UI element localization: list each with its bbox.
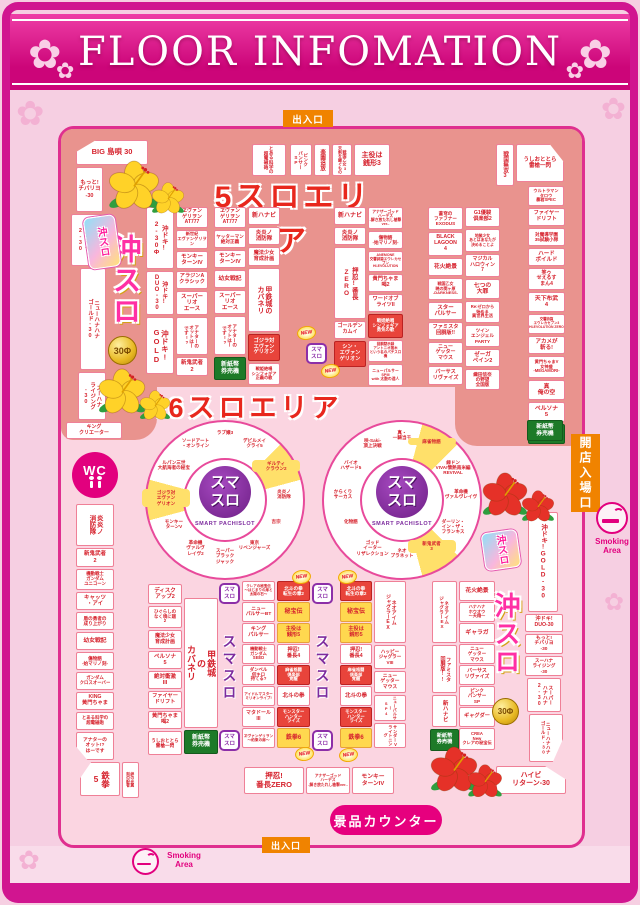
fortysix-left-col-machine: とある科学の 超電磁砲 — [76, 712, 114, 730]
fortysix-inner-col-machine: ディスク アップ2 — [148, 584, 182, 604]
floor-map-page: ✿ ✿ FLOOR INFOMATION ✿ ✿ ✿ ✿ ✿ ✿ 出入口 5スロ… — [0, 0, 640, 905]
fortysix-left-col-machine: 幼女戦記 — [76, 632, 114, 650]
five-slot-col-f-machine: 蒼穹の ファフナー EXODUS — [428, 207, 463, 230]
smaslo-logo: スマ スロ — [199, 466, 251, 518]
island2-left-machine: 鉄拳6 — [340, 728, 372, 748]
circle-machine-label: デビルメイ クライ5 — [231, 438, 279, 449]
bottom-row-machine: アナザーゴッド ハーデス -解き放たれし槍撃ver.- — [306, 767, 350, 794]
top-row-machine: 楽園追放 — [314, 144, 330, 176]
wc-label: WC — [83, 463, 107, 478]
top-row-machine: 戦国乙女3 天剣を継ぐもの — [332, 144, 352, 176]
five-slot-col-g-machine: ツイン エンジェル PARTY — [465, 325, 500, 347]
bottom-strip — [10, 846, 630, 886]
top-row-machine: 戦国無双3 — [496, 144, 514, 186]
island3-left-machine: ファミスタ 回胴版!! — [432, 645, 457, 693]
five-slot-col-c-machine: 新ハナビ — [248, 207, 280, 225]
coin-30-badge: 30Φ — [492, 698, 519, 725]
coin-30-badge: 30Φ — [108, 336, 137, 365]
five-slot-col-e-machine: 回胴黙示録 アントニオ猪木 という名のパチスロ機 — [368, 340, 403, 362]
island2-right-machine: サンダーV ライトニング — [374, 723, 406, 748]
five-slot-right-col-machine: ハード ボイルド — [528, 248, 565, 266]
circle-machine-label: バイオ ハザード5 — [327, 460, 375, 471]
five-slot-right-col-machine: 真 俺の空 — [528, 380, 565, 400]
fortysix-inner-col-machine: うしおととら 雷槍一閃 — [148, 731, 182, 755]
island1-left-machine: マタドール III — [242, 707, 275, 727]
hibiscus-flower-icon — [138, 390, 172, 420]
okislo-right-col-machine: 沖ドキ!GOLD-30 — [528, 512, 558, 612]
five-slot-right-col-machine: 交響詩篇 エウレカセブン3 HI-EVOLUTION ZERO — [528, 314, 565, 334]
sakura-icon: ✿ — [601, 92, 626, 127]
five-slot-col-a-machine: 新鬼武者 2 — [176, 357, 208, 376]
island1-left-machine: ヱヴァンゲリヲン 〜約束の扉〜 — [242, 728, 275, 748]
hibiscus-flower-icon — [520, 490, 556, 522]
page-title: FLOOR INFOMATION — [78, 29, 562, 75]
island3-right-machine: ギャグダー — [459, 707, 495, 727]
five-slot-right-col-machine: ファイヤー ドリフト — [528, 208, 565, 226]
island1-left-machine: キング パルサー — [242, 623, 275, 643]
island1-left-machine: ダンベル 何キロ 持てる? — [242, 665, 275, 685]
circle-machine-label: 化物語 — [327, 519, 375, 524]
five-slot-col-d-machine: シン・ エヴァン ゲリオン — [334, 341, 366, 367]
five-slot-col-b-machine: ヱヴァン ゲリヲン AT777 — [214, 207, 246, 228]
five-slot-col-c-machine: 魔法少女 育成計画 — [248, 247, 280, 266]
smoking-icon — [132, 848, 159, 875]
bottom-row-machine: モンキー ターンIV — [352, 767, 394, 794]
island1-left-machine: ニュー パルサーBT — [242, 602, 275, 622]
island1-left-machine: クレアの秘宝伝 〜はじまりの扉と 太陽の石〜 — [242, 581, 275, 601]
island1-right-machine: 押忍! 番長4 — [277, 644, 310, 664]
hibiscus-flower-icon — [150, 182, 186, 214]
prize-counter: 景品カウンター — [330, 805, 442, 835]
sakura-icon: ✿ — [604, 588, 624, 617]
okislo-right-col-machine: もっと! チバリヨ -30 — [525, 634, 563, 654]
island2-left-machine: モンスター ハンター ライズ — [340, 707, 372, 727]
bottom-row-machine: 押忍! 番長ZERO — [244, 767, 304, 794]
fortysix-left-col-machine: 絆の光翼 刻の配者 — [122, 762, 139, 798]
sakura-icon: ✿ — [566, 58, 584, 84]
sakura-icon: ✿ — [16, 94, 45, 134]
island3-left-machine: 新ハナビ — [432, 695, 457, 727]
five-slot-col-f-machine: ファミスタ 回胴版!! — [428, 322, 463, 340]
five-slot-col-f-machine: ニュー ゲッター マウス — [428, 342, 463, 364]
fortysix-inner-col-machine: 黄門ちゃま 喝2 — [148, 711, 182, 729]
circle-machine-label: 吉宗 — [252, 519, 300, 524]
okislo-left-okidoki-machine: 沖ドキ! GOLD — [146, 317, 174, 374]
circle-machine-label: ソードアート ・オンライン — [172, 438, 220, 449]
circle-machine-label: ゴジラ対 エヴァン ゲリオン — [142, 489, 190, 507]
island1-right-machine: 北斗の拳 — [277, 686, 310, 706]
fortysix-left-col-machine: 機動戦士 ガンダム ユニコーン — [76, 569, 114, 590]
circle-machine-label: 緑ドン VIVA!情熱南米編 REVIVAL — [429, 460, 477, 476]
five-slot-col-g-machine: ゼーガ ペイン2 — [465, 349, 500, 367]
island2-right-machine: ニューパルサー SP4 — [374, 695, 406, 721]
fortysix-slot-area-title: 46スロエリア — [148, 386, 344, 425]
entrance-badge-bottom: 出入口 — [262, 837, 310, 853]
smoking-area-label-right: Smoking Area — [581, 537, 640, 555]
five-slot-col-c-machine: 甲鉄城の カバネリ — [248, 268, 280, 332]
circle-machine-label: 麻雀物語 — [408, 438, 456, 445]
five-slot-col-g-machine: Re:ゼロから 始める 異世界生活 — [465, 301, 500, 323]
circle-machine-label: モンキー ターンV — [150, 519, 198, 530]
entrance-badge-top: 出入口 — [283, 110, 333, 127]
five-slot-col-e-machine: アナザーゴッド ハーデス -解き放たれし槍撃ver.- — [368, 207, 403, 229]
smaslo-mini-badge: スマ スロ — [306, 343, 327, 364]
five-slot-right-col-machine: 笑ゥ せえるす まん4 — [528, 268, 565, 290]
five-slot-col-e-machine: 黄門ちゃま 喝2 — [368, 274, 403, 292]
smaslo-mini-badge: スマ スロ — [312, 730, 333, 751]
circle-machine-label: ギルティ クラウン2 — [252, 460, 300, 473]
five-slot-right-col-machine: ペルソナ 5 — [528, 402, 565, 422]
fortysix-inner-col-machine: 魔法少女 育成計画 — [148, 630, 182, 649]
sakura-icon: ✿ — [56, 58, 74, 84]
five-slot-col-a-machine: 新世紀 エヴァンゲリヲン — [176, 230, 208, 249]
five-slot-right-col-machine: 対魔導学園 35試験小隊 — [528, 228, 565, 246]
five-slot-col-c-machine: ゴジラ対 エヴァン ゲリオン — [248, 334, 280, 361]
island1-right-machine: 主役は 銭形5 — [277, 623, 310, 643]
five-slot-col-g-machine: 地獄少女 あとはあなたが 決めることよ — [465, 229, 500, 252]
island1-right-machine: 秘宝伝 — [277, 602, 310, 622]
five-slot-col-f-machine: BLACK LAGOON 4 — [428, 232, 463, 256]
island1-right-machine: 鉄拳6 — [277, 728, 310, 748]
island1-right-machine: 麻雀格闘 倶楽部 覚醒 — [277, 665, 310, 685]
fortysix-left-col-machine: 炎炎ノ 消防隊 — [76, 504, 114, 546]
circle-machine-label: 革命機 ヴァルヴレイヴ — [437, 489, 485, 500]
island2-right-machine: ニュー ゲッター マウス — [374, 671, 406, 693]
five-slot-col-e-machine: ANEMONE 交響詩篇エウレカセブン HI-EVOLUTION — [368, 251, 403, 272]
smaslo-mini-badge: スマ スロ — [219, 583, 240, 604]
fortysix-inner-col-machine: ペルソナ 5 — [148, 651, 182, 669]
circle-machine-label: ダーリン・ イン・ザ・ フランキス — [429, 519, 477, 535]
island1-right-machine: 北斗の拳 転生の章2 — [277, 581, 310, 601]
five-slot-col-b-machine: スーパー リオ エース — [214, 290, 246, 314]
fortysix-left-col-machine: 傷物語 -始マリノ刻- — [76, 652, 114, 670]
opening-entrance-badge: 開店入場口 — [571, 434, 600, 512]
five-slot-col-b-machine: アナターの オットはー です!? — [214, 316, 246, 355]
five-slot-col-f-machine: スター パルサー — [428, 302, 463, 320]
five-slot-col-a-machine: アラジンA クラシック — [176, 271, 208, 289]
fortysix-left-col-machine: KING 黄門ちゃま — [76, 692, 114, 710]
five-slot-right-col-machine: 天下布武 4 — [528, 292, 565, 312]
five-slot-col-g-machine: 七つの 大罪 — [465, 279, 500, 299]
smoking-area-label-bottom: Smoking Area — [158, 851, 210, 869]
circle-machine-label: 革命機 ヴァルヴ レイヴ2 — [172, 540, 220, 556]
fortysix-left-col-machine: キャッツ ・アイ — [76, 592, 114, 610]
circle-machine-label: 咲-Saki- 頂上決戦 — [349, 438, 397, 449]
five-slot-col-d-machine: 押忍!番長 ZERO — [334, 247, 366, 319]
island1-left-machine: アイドルマスター ミリオンライブ! — [242, 686, 275, 706]
five-slot-col-a-machine: アナターの オットはー です!? — [176, 317, 208, 355]
okislo-right-col-machine: 新紙幣 券売機 — [527, 420, 563, 441]
top-row-machine: とある科学の 超電磁砲 — [252, 144, 286, 176]
fortysix-inner-col-machine: 絶対衝激 III — [148, 671, 182, 689]
five-slot-col-f-machine: 花火絶景 — [428, 258, 463, 276]
five-slot-col-b-machine: ヤッターマン 絶対正義 — [214, 230, 246, 248]
smaslo-logo: スマ スロ — [376, 466, 428, 518]
five-slot-col-g-machine: G1優駿 倶楽部2 — [465, 207, 500, 227]
top-row-machine: 主役は 銭形3 — [354, 144, 390, 176]
header-banner: ✿ ✿ FLOOR INFOMATION ✿ ✿ — [10, 14, 630, 90]
five-slot-col-e-machine: ニューパルサー SPIII with 太鼓の達人 — [368, 364, 403, 386]
island1-left-machine: 機動戦士 ガンダム SEED — [242, 644, 275, 664]
smaslo-mini-badge: スマ スロ — [219, 730, 240, 751]
okislo-left-okidoki-machine: 沖ドキ! 2-30Φ — [146, 207, 174, 269]
island2-left-machine: 麻雀格闘 倶楽部 覚醒 — [340, 665, 372, 685]
smaslo-strip-label: スマスロ — [219, 606, 240, 730]
restroom-icon — [90, 481, 101, 488]
five-slot-col-e-machine: 戦姫絶唱 シンフォギア 勇気の歌 — [368, 314, 403, 338]
five-slot-col-d-machine: 炎炎ノ 消防隊 — [334, 227, 366, 245]
island3-left-machine: ネオアイム ジャグラーEX — [432, 581, 457, 643]
fortysix-inner-col-machine: ひぐらしの なく頃に廻 2 — [148, 606, 182, 628]
island2-right-machine: ネオアイム ジャグラーEX — [374, 581, 406, 643]
smaslo-mini-badge: スマ スロ — [312, 583, 333, 604]
five-slot-col-b-machine: モンキー ターンIV — [214, 250, 246, 268]
okislo-left-okidoki-machine: 沖ドキ! DUO-30 — [146, 271, 174, 315]
five-slot-col-a-machine: モンキー ターンIV — [176, 251, 208, 269]
hibiscus-flower-icon — [466, 764, 504, 797]
island2-left-machine: 主役は 銭形5 — [340, 623, 372, 643]
five-slot-col-g-machine: 織田信奈 の野望 全国版 — [465, 369, 500, 390]
okislo-right-col-machine: スーハナ ライジング -30 — [525, 656, 563, 676]
okislo-right-col-machine: スーパー ハナハナ 2-30 — [527, 678, 561, 712]
okislo-right-col-machine: 沖ドキ! DUO-30 — [525, 614, 563, 632]
top-row-machine: ウルトラマン タロウ 暴君SPEC — [528, 186, 564, 206]
circle-machine-label: からくり サーカス — [319, 489, 367, 500]
top-row-machine: ピンク パンサー SP — [290, 144, 312, 176]
island1-right-machine: モンスター ハンター ライズ — [277, 707, 310, 727]
island2-left-machine: 押忍! 番長4 — [340, 644, 372, 664]
oki-slot-title-right: 沖スロ — [488, 592, 525, 702]
five-slot-col-b-machine: 幼女戦記 — [214, 270, 246, 288]
five-slot-col-b-machine: 新紙幣 券売機 — [214, 357, 246, 380]
island2-left-machine: 秘宝伝 — [340, 602, 372, 622]
five-slot-col-a-machine: スーパー リオ エース — [176, 291, 208, 315]
circle-machine-label: ルパン三世 大航海者の秘宝 — [150, 460, 198, 471]
restroom-badge: WC — [72, 452, 118, 498]
five-slot-col-d-machine: 新ハナビ — [334, 207, 366, 225]
circle-machine-label: ラブ嬢3 — [201, 430, 249, 435]
five-slot-right-col-machine: アカメが 斬る! — [528, 336, 565, 354]
fortysix-left-col-machine: 新鬼武者 2 — [76, 548, 114, 567]
circle-machine-label: 炎炎ノ 消防隊 — [260, 489, 308, 500]
sakura-icon: ✿ — [18, 845, 40, 876]
five-slot-col-e-machine: ワードオブ ライツII — [368, 294, 403, 312]
okislo-left-hana-machine: もっと! チバリヨ -30 — [76, 167, 103, 212]
five-slot-col-f-machine: バーサス リヴァイズ — [428, 366, 463, 385]
five-slot-col-f-machine: 戦国乙女 暁の関ヶ原 -DARKNESS- — [428, 278, 463, 300]
five-slot-right-col-machine: 黄門ちゃまV 女神盛 -MEGAMORI- — [528, 356, 565, 378]
five-slot-col-e-machine: 傷物語 -始マリノ刻- — [368, 231, 403, 249]
oki-slot-sticker: 沖スロ — [481, 529, 522, 572]
smoking-icon — [596, 502, 628, 534]
fortysix-left-col-machine: 盾の勇者の 成り上がり — [76, 612, 114, 630]
fortysix-inner-col-machine: ファイヤー ドリフト — [148, 691, 182, 709]
kabaneri-col-machine: 甲鉄城 の カバネリ — [184, 598, 218, 728]
island2-right-machine: ハッピー ジャグラー VIII — [374, 645, 406, 669]
fortysix-left-col-machine: ガンダム クロスオーバー — [76, 672, 114, 690]
okislo-left-hana-machine: キング クリエーター — [66, 422, 122, 439]
five-slot-col-d-machine: ゴールデン カムイ — [334, 321, 366, 339]
five-slot-col-g-machine: マジカル ハロウィン 7 — [465, 254, 500, 277]
five-slot-col-c-machine: 炎炎ノ 消防隊 — [248, 227, 280, 245]
circle-machine-label: ゴッド イーター リザレクション — [349, 540, 397, 556]
smaslo-strip-label: スマスロ — [312, 606, 333, 730]
island2-left-machine: 北斗の拳 — [340, 686, 372, 706]
kabaneri-col-machine: 新紙幣 券売機 — [184, 730, 218, 754]
five-slot-col-c-machine: 戦姫絶唱 シンフォギア 正義の歌 — [248, 363, 280, 385]
